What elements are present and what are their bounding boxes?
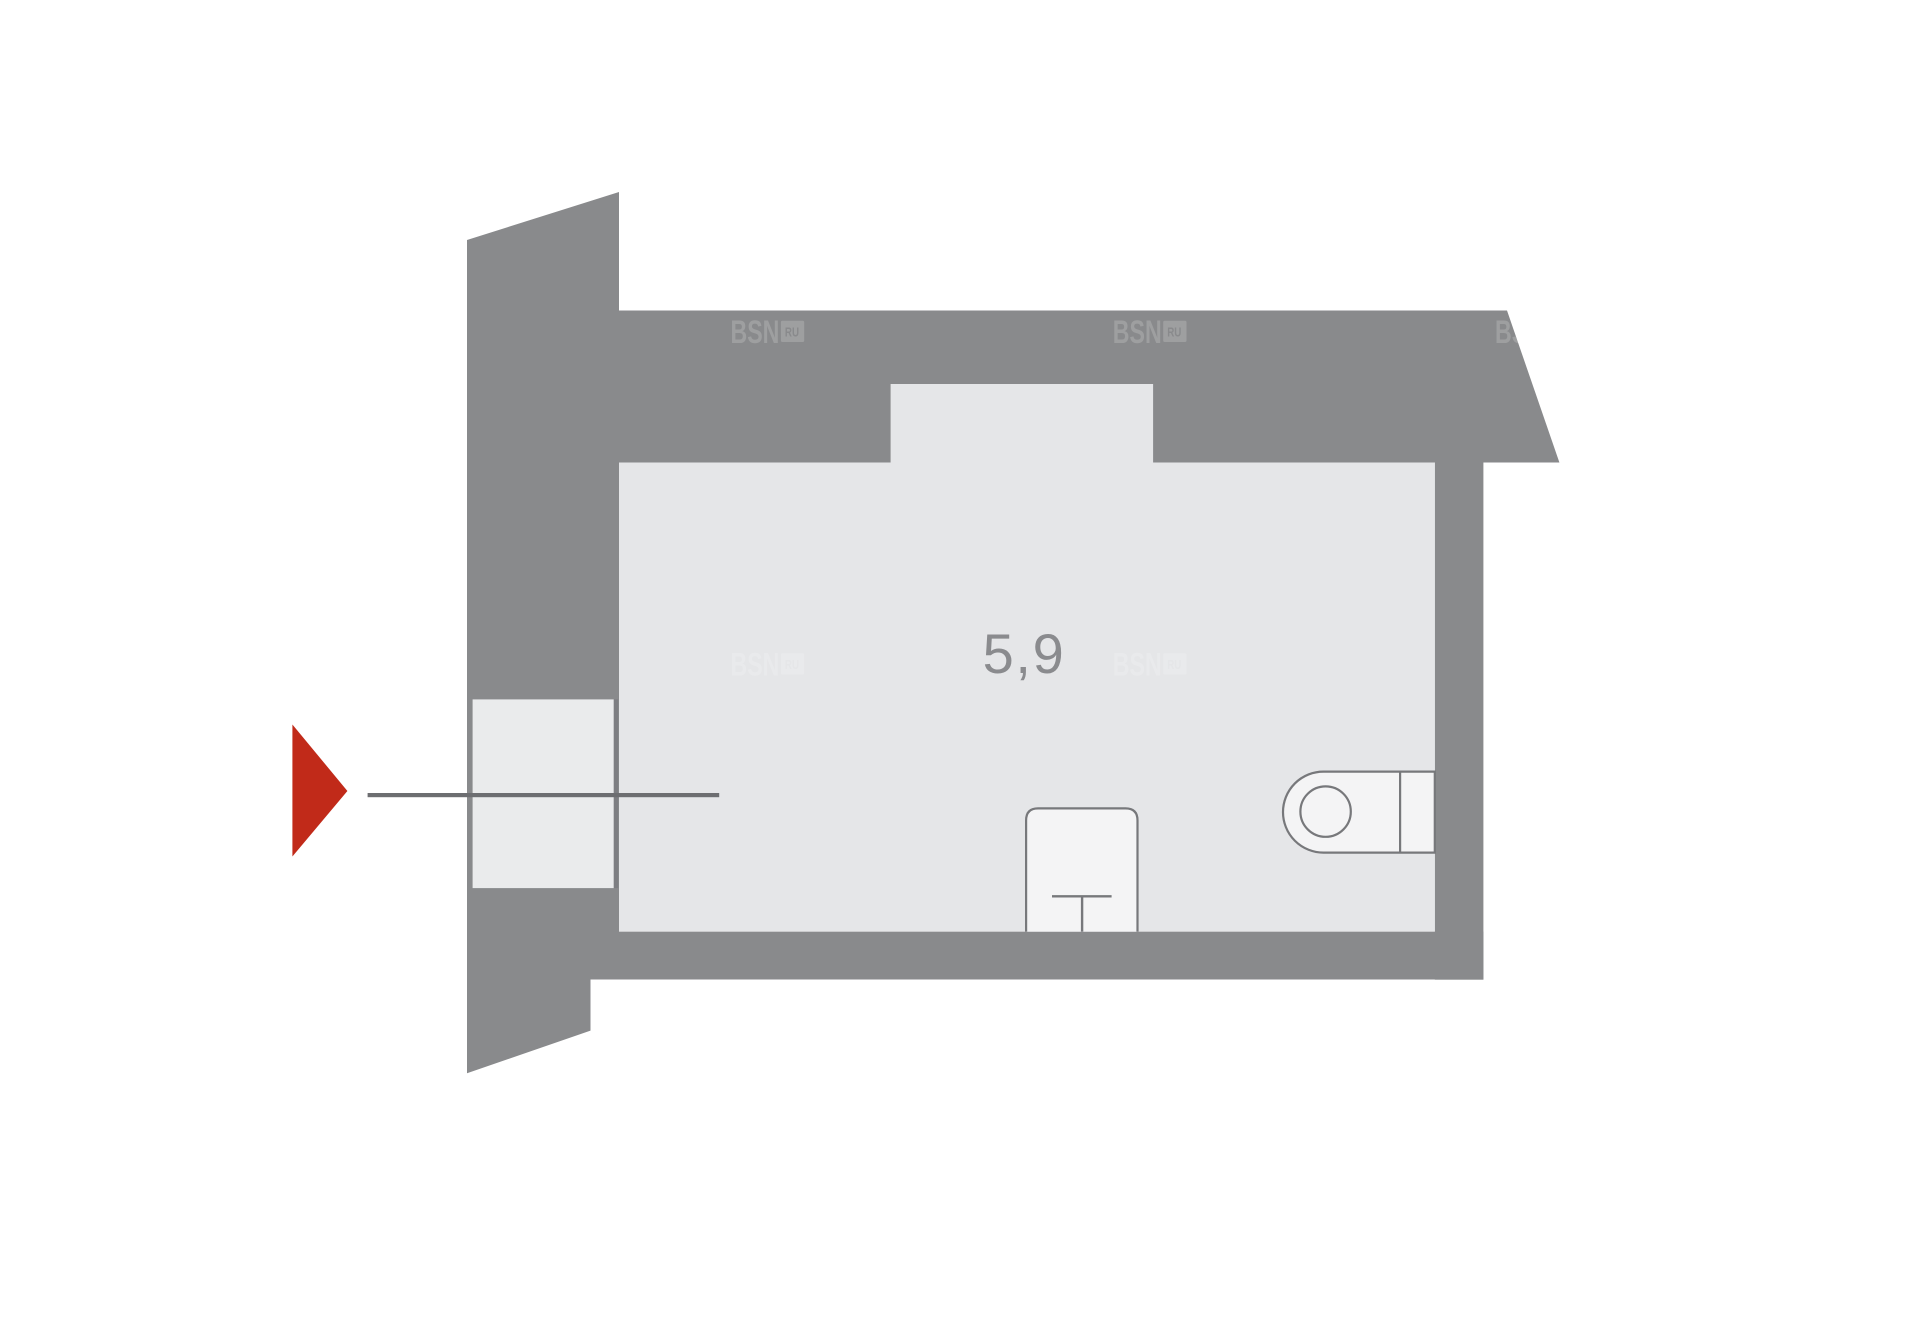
- svg-text:BSN: BSN: [1113, 646, 1162, 683]
- svg-text:BSN: BSN: [731, 313, 780, 350]
- svg-text:RU: RU: [785, 658, 799, 673]
- svg-text:BSN: BSN: [1113, 313, 1162, 350]
- svg-text:BSN: BSN: [731, 646, 780, 683]
- svg-text:BSN: BSN: [1495, 313, 1544, 350]
- svg-text:RU: RU: [785, 325, 799, 340]
- svg-text:RU: RU: [1167, 658, 1181, 673]
- svg-text:RU: RU: [1167, 325, 1181, 340]
- svg-text:5,9: 5,9: [983, 622, 1066, 685]
